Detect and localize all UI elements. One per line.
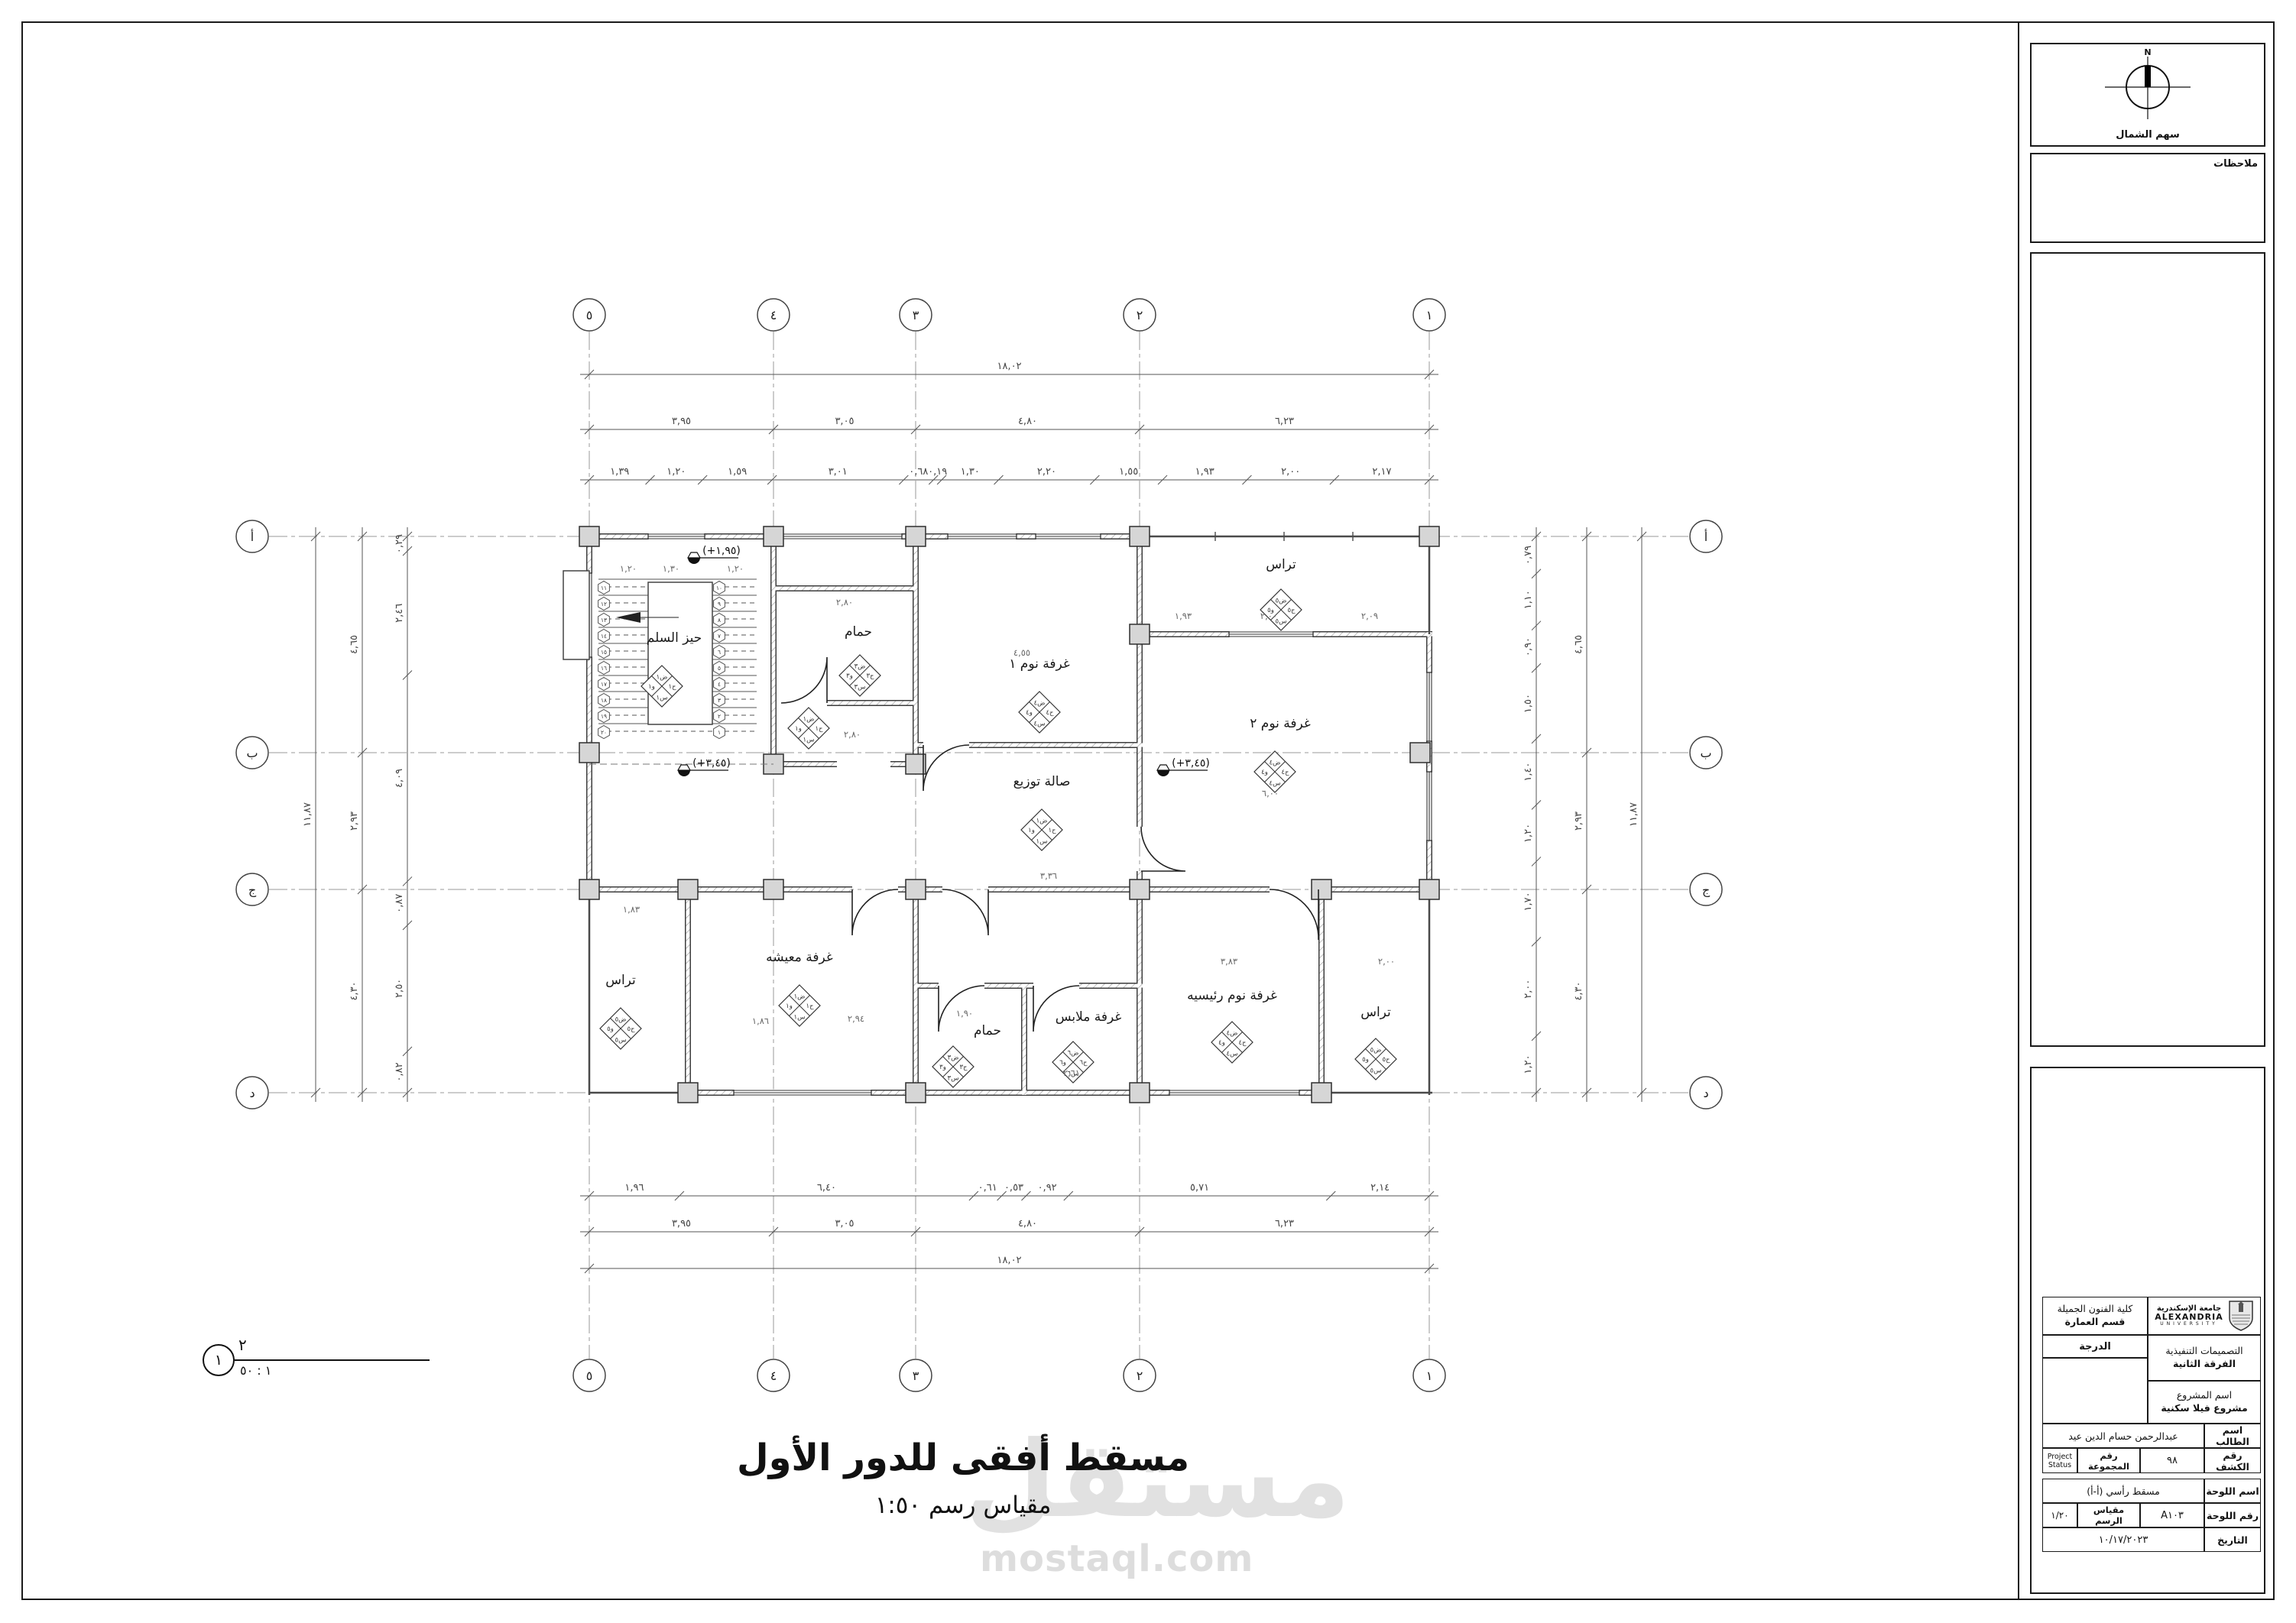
svg-text:ح٤: ح٤ <box>1281 769 1289 776</box>
svg-text:١,٥٠: ١,٥٠ <box>1523 694 1534 713</box>
dimension-row: ٣,٩٥٣,٠٥٤,٨٠٦,٢٣ <box>580 1218 1438 1236</box>
door <box>942 889 988 935</box>
svg-text:و١: و١ <box>648 683 655 691</box>
stair-step-tag: ٦ <box>714 646 725 659</box>
drawing-sheet: مستقل mostaql.com ٥٥٤٤٣٣٢٢١١أأببججدد١,٣٩… <box>0 0 2296 1623</box>
inline-dimension: ٢,٠٠ <box>1260 611 1277 621</box>
svg-text:(+٣,٤٥): (+٣,٤٥) <box>692 757 731 769</box>
entrance-projection <box>563 571 589 659</box>
stair-step-tag: ١٢ <box>598 598 610 611</box>
svg-text:٣: ٣ <box>913 1369 919 1383</box>
room-label: تراس <box>605 973 636 988</box>
svg-text:٠,٩٢: ٠,٩٢ <box>1038 1182 1057 1194</box>
svg-text:١٢: ١٢ <box>601 601 607 607</box>
svg-text:٠,٥٣: ٠,٥٣ <box>1004 1182 1023 1194</box>
svg-text:١: ١ <box>1426 308 1433 322</box>
svg-text:س٤: س٤ <box>1034 721 1046 728</box>
svg-text:١٨,٠٢: ١٨,٠٢ <box>997 1255 1021 1266</box>
column <box>1130 880 1150 899</box>
svg-text:١: ١ <box>1426 1369 1433 1383</box>
door <box>923 745 969 791</box>
svg-text:٦,٢٣: ٦,٢٣ <box>1275 416 1294 427</box>
svg-text:٦,٤٠: ٦,٤٠ <box>817 1182 836 1194</box>
svg-text:٤: ٤ <box>770 308 777 322</box>
floor-plan: ٥٥٤٤٣٣٢٢١١أأببججدد١,٣٩١,٢٠١,٥٩٣,٠١٠,٦٨٠,… <box>0 0 2296 1623</box>
stair-step-tag: ١ <box>714 726 725 739</box>
inline-dimension: ١,٩٣ <box>1175 611 1192 621</box>
svg-text:س١: س١ <box>1036 838 1048 846</box>
grid-bubble: ج <box>1690 873 1722 905</box>
svg-text:ح١: ح١ <box>815 725 823 733</box>
dimension-row: ١٨,٠٢ <box>580 1255 1438 1273</box>
svg-text:١,٥٥: ١,٥٥ <box>1119 466 1138 478</box>
grid-bubble: أ <box>236 520 268 552</box>
column <box>906 1083 926 1103</box>
inline-dimension: ٦,٠٠ <box>1262 788 1279 799</box>
column <box>764 880 783 899</box>
view-marker-scale: ١ : ٥٠ <box>240 1363 271 1378</box>
room-label: صالة توزيع <box>1013 774 1071 789</box>
inline-dimension: ١,٩٠ <box>956 1008 973 1019</box>
svg-text:ض١: ض١ <box>657 674 668 682</box>
svg-text:٤,٦٥: ٤,٦٥ <box>349 635 360 654</box>
svg-text:ض٤: ض٤ <box>1034 700 1046 708</box>
svg-text:١٨,٠٢: ١٨,٠٢ <box>997 361 1021 372</box>
svg-text:١,٤٠: ١,٤٠ <box>1523 763 1534 782</box>
svg-text:س٥: س٥ <box>1370 1067 1382 1075</box>
grid-bubble: ٣ <box>900 299 932 331</box>
grid-bubble: ٢ <box>1124 299 1156 331</box>
svg-text:١٣: ١٣ <box>601 617 607 624</box>
svg-text:٢,٩٣: ٢,٩٣ <box>1573 811 1584 831</box>
svg-text:٣,٠١: ٣,٠١ <box>829 466 848 478</box>
svg-text:د: د <box>249 1086 255 1100</box>
watermark-domain: mostaql.com <box>980 1537 1253 1580</box>
room-label: غرفة ملابس <box>1056 1009 1122 1025</box>
room-finish-tag: ض٣ح٣س٣و٣ <box>839 655 880 696</box>
stair-step-tag: ١١ <box>598 581 610 594</box>
svg-text:و٤: و٤ <box>1261 769 1268 776</box>
grid-lines <box>269 332 1689 1359</box>
svg-text:٢,٢٠: ٢,٢٠ <box>1037 466 1056 478</box>
view-marker-line <box>235 1359 430 1361</box>
room-finish-tag: ض٤ح٤س٤و٤ <box>1211 1022 1253 1063</box>
svg-text:أ: أ <box>1704 529 1707 544</box>
svg-text:و١: و١ <box>786 1003 793 1010</box>
svg-text:و١: و١ <box>795 725 802 733</box>
room-finish-tag: ض١ح١س١و١ <box>1021 809 1062 850</box>
svg-text:و٤: و٤ <box>1218 1039 1225 1047</box>
stair-step-tag: ٤ <box>714 678 725 691</box>
svg-text:ض٥: ض٥ <box>1370 1047 1382 1054</box>
svg-text:١٥: ١٥ <box>601 649 607 656</box>
svg-text:١,٩٣: ١,٩٣ <box>1195 466 1214 478</box>
svg-text:٠,٢٩: ٠,٢٩ <box>394 534 405 553</box>
stair-step-tag: ١٦ <box>598 662 610 675</box>
svg-text:٢,٥٠: ٢,٥٠ <box>394 979 405 998</box>
column <box>579 743 599 763</box>
svg-text:ض٤: ض٤ <box>1270 760 1281 767</box>
stair-direction-arrow <box>616 612 640 623</box>
svg-text:٢,٤٦: ٢,٤٦ <box>394 604 405 623</box>
stair-step-tag: ١٤ <box>598 630 610 643</box>
room-label: غرفة نوم ١ <box>1009 656 1070 672</box>
grid-bubble: ٤ <box>757 299 790 331</box>
column <box>579 526 599 546</box>
svg-text:ح١: ح١ <box>1048 827 1056 834</box>
svg-text:٨: ٨ <box>718 617 721 624</box>
svg-text:١,٢٠: ١,٢٠ <box>666 466 686 478</box>
svg-text:٥,٧١: ٥,٧١ <box>1190 1182 1209 1194</box>
inline-dimension: ١,٨٦ <box>752 1016 769 1026</box>
column <box>1130 624 1150 644</box>
svg-text:١,٢٠: ١,٢٠ <box>1523 1054 1534 1074</box>
view-marker-number: ١ <box>215 1352 222 1369</box>
inline-dimension: ٢,٠٠ <box>1378 956 1395 967</box>
room-label: غرفة نوم رئيسيه <box>1187 988 1277 1003</box>
svg-text:ب: ب <box>1700 746 1711 760</box>
stair-step-tag: ٧ <box>714 630 725 643</box>
svg-text:ض٦: ض٦ <box>1068 1050 1079 1058</box>
svg-text:ض١: ض١ <box>794 993 806 1001</box>
column <box>678 1083 698 1103</box>
svg-text:١١,٨٧: ١١,٨٧ <box>302 802 313 827</box>
svg-text:ح٣: ح٣ <box>959 1064 968 1071</box>
svg-text:ح٤: ح٤ <box>1238 1039 1247 1047</box>
column <box>906 880 926 899</box>
svg-text:ض٣: ض٣ <box>855 663 866 671</box>
svg-text:٤: ٤ <box>770 1369 777 1383</box>
room-label: غرفة معيشه <box>766 950 833 965</box>
grid-bubble: ٤ <box>757 1359 790 1391</box>
dimension-row: ٣,٩٥٣,٠٥٤,٨٠٦,٢٣ <box>580 416 1438 434</box>
grid-bubble: أ <box>1690 520 1722 552</box>
stair-step-tag: ١٨ <box>598 694 610 707</box>
column <box>1410 743 1430 763</box>
svg-text:ض٥: ض٥ <box>1276 598 1287 605</box>
svg-text:ض٤: ض٤ <box>1227 1030 1238 1038</box>
dimension-row: ٠,٧٩١,١٠٠,٩٠١,٥٠١,٤٠١,٢٠١,٧٠٢,٠٠١,٢٠ <box>1523 527 1541 1102</box>
stair-step-tag: ٩ <box>714 598 725 611</box>
svg-text:ح٥: ح٥ <box>627 1025 635 1033</box>
grid-bubble: د <box>236 1077 268 1109</box>
svg-text:٠,٨٢: ٠,٨٢ <box>394 1062 405 1081</box>
svg-text:١٦: ١٦ <box>601 665 607 672</box>
svg-text:١٤: ١٤ <box>601 633 607 640</box>
svg-text:٥: ٥ <box>586 1369 593 1383</box>
room-finish-tag: ض٥ح٥س٥و٥ <box>1355 1038 1396 1080</box>
room-finish-tag: ض٤ح٤س٤و٤ <box>1019 692 1060 733</box>
room-finish-tag: ض١ح١س١و١ <box>788 708 829 749</box>
inline-dimension: ١,٨٣ <box>623 904 640 915</box>
inline-dimensions: ١,٢٠١,٣٠١,٢٠٢,٨٠٤,٥٥١,٩٣٢,٠٠٢,٠٩٦,٠٠٢,٨٠… <box>620 563 1395 1078</box>
room-label: حمام <box>974 1023 1001 1038</box>
svg-text:٤,٦٥: ٤,٦٥ <box>1573 635 1584 654</box>
svg-text:١١,٨٧: ١١,٨٧ <box>1628 802 1639 827</box>
svg-text:س١: س١ <box>803 737 815 744</box>
grid-bubble: ١ <box>1413 299 1445 331</box>
svg-text:٢,١٧: ٢,١٧ <box>1372 466 1391 478</box>
grid-bubble: ٢ <box>1124 1359 1156 1391</box>
svg-text:ح٥: ح٥ <box>1287 607 1296 614</box>
inline-dimension: ١,٣٠ <box>663 563 679 574</box>
svg-text:س٤: س٤ <box>1270 780 1281 788</box>
grid-bubble: د <box>1690 1077 1722 1109</box>
dimension-row: ١٨,٠٢ <box>580 361 1438 379</box>
staircase: ١٢٣٤٥٦٧٨٩١٠١١١٢١٣١٤١٥١٦١٧١٨١٩٢٠ <box>589 579 773 764</box>
svg-text:٠,٩٠: ٠,٩٠ <box>1523 637 1534 656</box>
svg-text:١٠: ١٠ <box>716 585 722 591</box>
door <box>852 889 898 935</box>
svg-text:١١: ١١ <box>601 585 607 591</box>
svg-text:و٥: و٥ <box>607 1025 614 1033</box>
column <box>579 880 599 899</box>
svg-text:٠,٨٧: ٠,٨٧ <box>394 894 405 913</box>
inline-dimension: ٢,٨٠ <box>844 729 861 740</box>
inline-dimension: ٤,٥٥ <box>1013 647 1030 658</box>
level-marker: (+٣,٤٥) <box>678 757 731 776</box>
svg-text:و٣: و٣ <box>846 672 853 680</box>
dimension-row: ١١,٨٧ <box>1628 527 1646 1102</box>
column <box>1312 880 1331 899</box>
svg-text:٢: ٢ <box>1137 1369 1143 1383</box>
room-finish-tag: ض٥ح٥س٥و٥ <box>600 1008 641 1049</box>
svg-text:ح١: ح١ <box>806 1003 814 1010</box>
drawing-scale: مقياس رسم ١:٥٠ <box>673 1492 1253 1519</box>
room-finish-tag: ض١ح١س١و١ <box>779 985 820 1026</box>
inline-dimension: ١,٢٠ <box>727 563 744 574</box>
dimension-row: ١,٩٦٦,٤٠٠,٦١٠,٥٣٠,٩٢٥,٧١٢,١٤ <box>580 1182 1438 1200</box>
svg-text:٠,٦٨: ٠,٦٨ <box>909 466 928 478</box>
svg-text:(+١,٩٥): (+١,٩٥) <box>702 545 741 557</box>
stair-step-tag: ٢ <box>714 710 725 723</box>
svg-text:١,٩٦: ١,٩٦ <box>624 1182 644 1194</box>
svg-text:٦,٢٣: ٦,٢٣ <box>1275 1218 1294 1229</box>
grid-bubble: ٥ <box>573 299 605 331</box>
dimension-row: ١١,٨٧ <box>302 527 320 1102</box>
view-marker-sheet-no: ٢ <box>238 1336 247 1354</box>
svg-text:و١: و١ <box>1028 827 1035 834</box>
svg-text:١٩: ١٩ <box>601 713 607 720</box>
svg-text:١,٣٠: ١,٣٠ <box>961 466 980 478</box>
door <box>1141 827 1185 871</box>
svg-text:٤,٨٠: ٤,٨٠ <box>1018 1218 1037 1229</box>
door <box>781 657 827 703</box>
column <box>1312 1083 1331 1103</box>
stair-step-tag: ٨ <box>714 614 725 627</box>
svg-text:و٥: و٥ <box>1362 1056 1369 1064</box>
dimension-row: ١,٣٩١,٢٠١,٥٩٣,٠١٠,٦٨٠,١٩١,٣٠٢,٢٠١,٥٥١,٩٣… <box>580 466 1438 484</box>
svg-text:ح٥: ح٥ <box>1382 1056 1390 1064</box>
svg-text:٤,٣٠: ٤,٣٠ <box>349 981 360 1000</box>
svg-text:٠,١٩: ٠,١٩ <box>928 466 947 478</box>
svg-text:ح٣: ح٣ <box>866 672 874 680</box>
svg-text:٦: ٦ <box>718 649 721 656</box>
svg-text:س٣: س٣ <box>855 684 866 692</box>
column <box>1419 526 1439 546</box>
svg-text:١,١٠: ١,١٠ <box>1523 590 1534 609</box>
level-marker: (+٣,٤٥) <box>1157 757 1210 776</box>
room-label: حيز السلم <box>647 630 702 646</box>
stair-step-tag: ٣ <box>714 694 725 707</box>
svg-text:ض٥: ض٥ <box>615 1016 627 1024</box>
svg-text:١,٣٩: ١,٣٩ <box>610 466 629 478</box>
svg-text:(+٣,٤٥): (+٣,٤٥) <box>1172 757 1210 769</box>
view-marker-bubble: ١ <box>203 1344 235 1376</box>
column <box>678 880 698 899</box>
svg-text:٥: ٥ <box>718 665 721 672</box>
svg-text:ح٤: ح٤ <box>1046 709 1054 717</box>
stair-step-tag: ١٩ <box>598 710 610 723</box>
svg-text:٤,٠٩: ٤,٠٩ <box>394 769 405 788</box>
room-finish-tag: ض٣ح٣س٣و٣ <box>932 1046 974 1087</box>
column <box>1419 880 1439 899</box>
level-markers: (+١,٩٥)(+٣,٤٥)(+٣,٤٥) <box>678 545 1210 776</box>
svg-text:ض٣: ض٣ <box>948 1054 959 1062</box>
svg-text:ب: ب <box>246 746 258 760</box>
svg-text:٥: ٥ <box>586 308 593 322</box>
svg-text:أ: أ <box>251 529 254 544</box>
stair-step-tag: ١٥ <box>598 646 610 659</box>
svg-text:٢٠: ٢٠ <box>601 729 607 736</box>
svg-text:ح١: ح١ <box>668 683 676 691</box>
room-finish-tag: ض٥ح٥س٥و٥ <box>1260 589 1302 630</box>
svg-text:٢: ٢ <box>718 713 721 720</box>
room-label: غرفة نوم ٢ <box>1250 716 1311 731</box>
svg-text:و٣: و٣ <box>939 1064 946 1071</box>
svg-text:٢: ٢ <box>1137 308 1143 322</box>
inline-dimension: ٢,٦١ <box>1063 1067 1080 1078</box>
dimension-row: ٠,٢٩٢,٤٦٤,٠٩٠,٨٧٢,٥٠٠,٨٢ <box>394 527 412 1102</box>
svg-text:س١: س١ <box>657 695 668 702</box>
svg-text:س٤: س٤ <box>1227 1051 1238 1058</box>
column <box>1130 526 1150 546</box>
svg-text:٣,٠٥: ٣,٠٥ <box>835 416 854 427</box>
svg-text:٣,٩٥: ٣,٩٥ <box>672 1218 691 1229</box>
drawing-title: مسقط أفقى للدور الأول <box>673 1437 1253 1479</box>
svg-text:و٦: و٦ <box>1059 1059 1066 1067</box>
stair-step-tag: ١٧ <box>598 678 610 691</box>
stair-step-tag: ٥ <box>714 662 725 675</box>
inline-dimension: ٢,٠٩ <box>1361 611 1378 621</box>
dimension-row: ٤,٦٥٢,٩٣٤,٣٠ <box>349 527 367 1102</box>
grid-bubble: ج <box>236 873 268 905</box>
grid-bubble: ب <box>236 737 268 769</box>
svg-text:٣: ٣ <box>913 308 919 322</box>
column <box>1130 1083 1150 1103</box>
svg-text:٩: ٩ <box>718 601 721 607</box>
svg-text:ج: ج <box>248 883 257 898</box>
svg-text:٤,٣٠: ٤,٣٠ <box>1573 981 1584 1000</box>
inline-dimension: ٢,٨٠ <box>836 597 853 607</box>
svg-text:د: د <box>1703 1086 1708 1100</box>
svg-text:١٨: ١٨ <box>601 697 607 704</box>
room-label: حمام <box>845 624 872 640</box>
svg-text:١٧: ١٧ <box>601 681 607 688</box>
windows <box>586 532 1432 1096</box>
svg-text:و٤: و٤ <box>1026 709 1033 717</box>
svg-text:٠,٦١: ٠,٦١ <box>978 1182 997 1194</box>
column <box>906 526 926 546</box>
svg-text:س٥: س٥ <box>615 1037 627 1045</box>
room-label: تراس <box>1360 1005 1391 1020</box>
inline-dimension: ٣,٨٣ <box>1221 956 1237 967</box>
svg-text:س١: س١ <box>794 1014 806 1022</box>
level-marker: (+١,٩٥) <box>688 545 741 564</box>
svg-text:ج: ج <box>1702 883 1711 898</box>
stair-step-tag: ٢٠ <box>598 726 610 739</box>
svg-text:٤: ٤ <box>718 681 721 688</box>
svg-text:٣,٩٥: ٣,٩٥ <box>672 416 691 427</box>
dimension-row: ٤,٦٥٢,٩٣٤,٣٠ <box>1573 527 1591 1102</box>
stair-step-tag: ١٣ <box>598 614 610 627</box>
svg-text:ح٦: ح٦ <box>1079 1059 1088 1067</box>
svg-text:١,٧٠: ١,٧٠ <box>1523 892 1534 911</box>
inline-dimension: ١,٢٠ <box>620 563 637 574</box>
inline-dimension: ٣,٣٦ <box>1040 870 1057 881</box>
grid-bubble: ٣ <box>900 1359 932 1391</box>
column <box>906 754 926 774</box>
svg-text:٣,٠٥: ٣,٠٥ <box>835 1218 854 1229</box>
svg-text:س٣: س٣ <box>948 1075 959 1083</box>
column <box>764 526 783 546</box>
svg-text:٤,٨٠: ٤,٨٠ <box>1018 416 1037 427</box>
svg-text:٢,٠٠: ٢,٠٠ <box>1523 980 1534 999</box>
svg-text:ض١: ض١ <box>1036 818 1048 825</box>
svg-text:٢,٠٠: ٢,٠٠ <box>1281 466 1300 478</box>
svg-text:٣: ٣ <box>718 697 721 704</box>
svg-text:١: ١ <box>718 729 721 736</box>
svg-text:١,٥٩: ١,٥٩ <box>728 466 747 478</box>
grid-bubble: ٥ <box>573 1359 605 1391</box>
room-finish-tag: ض٤ح٤س٤و٤ <box>1254 751 1296 792</box>
door <box>1033 986 1079 1032</box>
svg-text:٢,١٤: ٢,١٤ <box>1370 1182 1390 1194</box>
svg-text:٠,٧٩: ٠,٧٩ <box>1523 546 1534 565</box>
grid-bubbles: ٥٥٤٤٣٣٢٢١١أأببججدد <box>236 299 1722 1391</box>
stair-step-tag: ١٠ <box>714 581 725 594</box>
room-label: تراس <box>1266 557 1296 572</box>
grid-bubble: ١ <box>1413 1359 1445 1391</box>
svg-text:٢,٩٣: ٢,٩٣ <box>349 811 360 831</box>
inline-dimension: ٢,٩٤ <box>848 1013 864 1024</box>
svg-text:٧: ٧ <box>718 633 721 640</box>
grid-bubble: ب <box>1690 737 1722 769</box>
svg-text:ض١: ض١ <box>803 716 815 724</box>
svg-text:١,٢٠: ١,٢٠ <box>1523 824 1534 843</box>
